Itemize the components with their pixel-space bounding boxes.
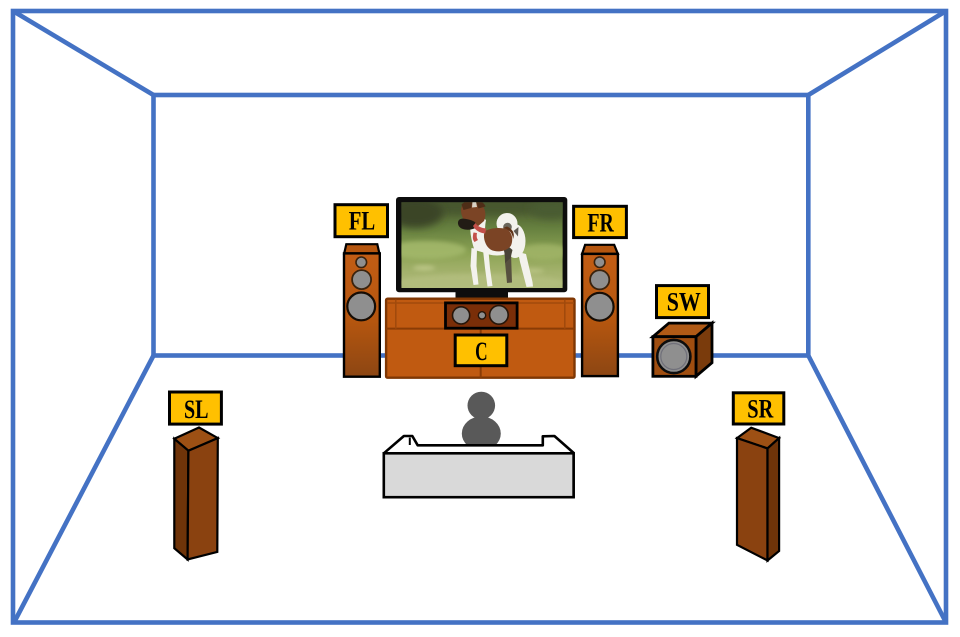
svg-text:C: C <box>475 337 488 366</box>
svg-text:FR: FR <box>587 209 614 238</box>
svg-text:SW: SW <box>667 287 701 316</box>
svg-text:FL: FL <box>349 207 376 236</box>
svg-text:SL: SL <box>184 395 209 424</box>
svg-text:SR: SR <box>747 394 773 423</box>
